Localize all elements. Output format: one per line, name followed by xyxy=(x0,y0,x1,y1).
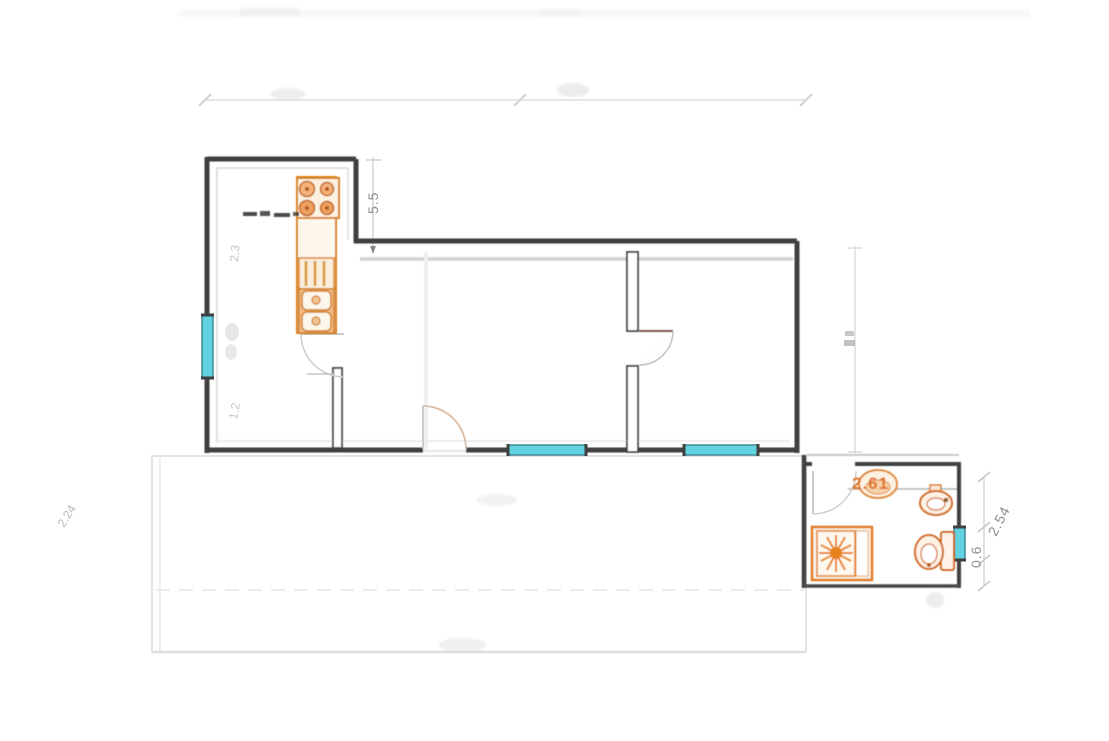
room-divider-wall-lower xyxy=(627,366,638,452)
vestibule-wall xyxy=(333,368,342,448)
bathroom-depth-label: 2.54 xyxy=(985,503,1014,538)
kitchen-window-lower-label: 1.2 xyxy=(226,401,243,420)
dimension-lines: 5.5 0.6 2.54 2.3 1.2 2.24 xyxy=(55,94,1014,591)
bathroom-door-swing-arc xyxy=(813,471,856,514)
shower-tray-sunburst-icon xyxy=(812,527,872,580)
windows xyxy=(201,315,966,560)
floor-plan-drawing: 5.5 0.6 2.54 2.3 1.2 2.24 xyxy=(0,0,1109,741)
kitchen-fixtures xyxy=(243,177,339,333)
bathroom-dimension-lines: 0.6 2.54 xyxy=(968,472,1013,591)
illegible-kitchen-scribble xyxy=(243,211,299,217)
bathroom-fixtures: 2.61 xyxy=(812,470,954,580)
kitchen-wall-dimension-labels: 2.3 1.2 xyxy=(225,244,243,420)
room-divider-wall-upper xyxy=(627,252,638,331)
bathroom-window-label: 0.6 xyxy=(968,546,984,568)
bedroom-door-swing-arc xyxy=(639,331,673,365)
terrace-outline xyxy=(152,456,806,652)
kitchen-window-upper-label: 2.3 xyxy=(227,244,242,262)
living-room-window-glyph xyxy=(508,444,586,456)
kitchen-depth-label: 5.5 xyxy=(365,192,381,214)
entrance-door-swing-arc xyxy=(423,406,466,449)
drawer-cabinet-icon xyxy=(299,258,334,289)
bathroom-width-label: 2.61 xyxy=(852,474,889,493)
stove-4-burners-icon xyxy=(297,178,339,218)
terrace-left-label: 2.24 xyxy=(55,502,79,530)
right-dimension-line xyxy=(844,246,862,454)
bedroom-window-glyph xyxy=(684,444,758,456)
toilet-with-cistern-icon xyxy=(915,532,954,570)
double-sink-icon xyxy=(299,289,334,333)
doors xyxy=(301,331,856,514)
floor-plan-canvas: 5.5 0.6 2.54 2.3 1.2 2.24 xyxy=(0,0,1109,741)
kitchen-window-glyph xyxy=(201,315,214,378)
